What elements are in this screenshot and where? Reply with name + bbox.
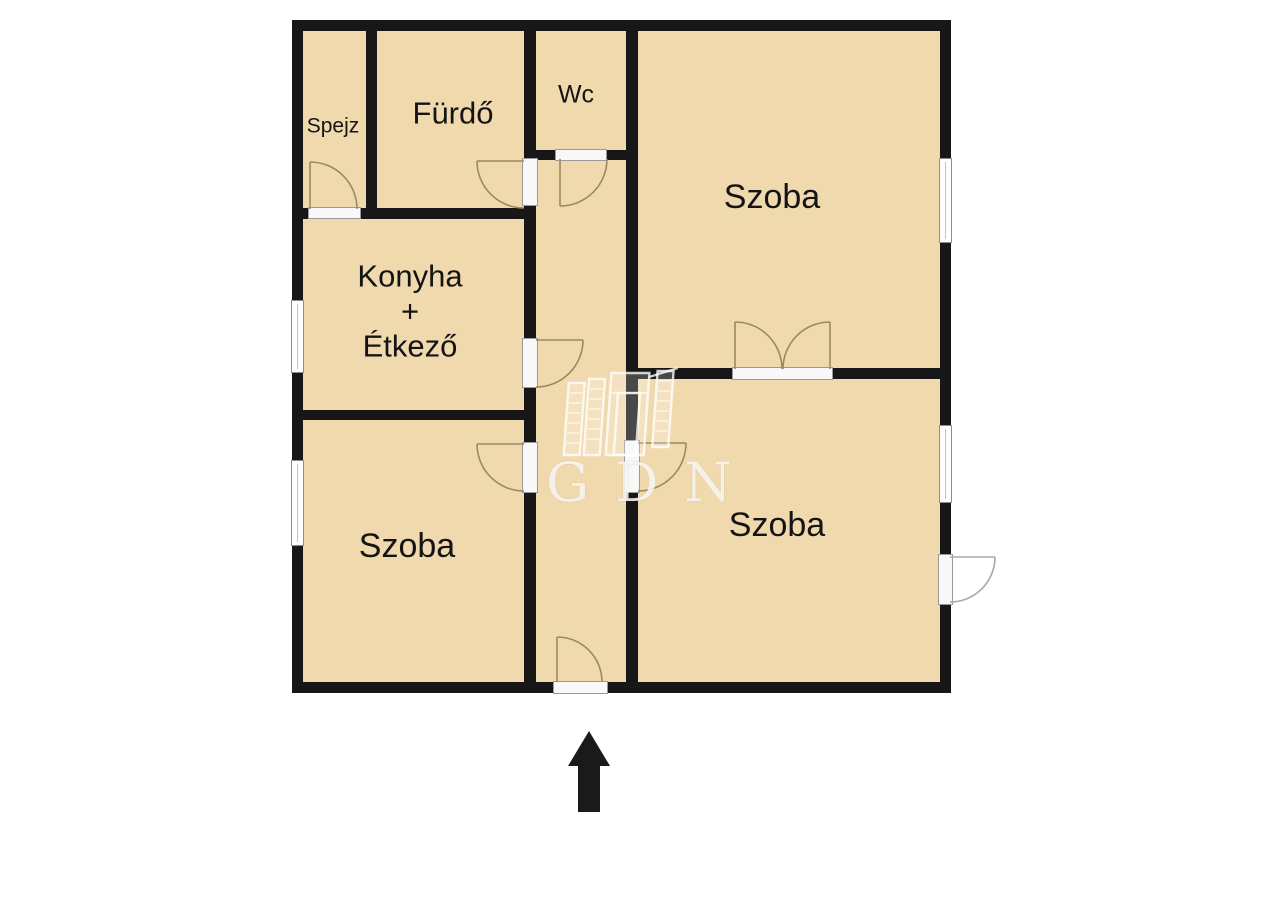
door-sill-entrance <box>553 681 608 694</box>
door-sill-szoba-bottom-left <box>522 442 538 493</box>
konyha-line2: + <box>357 294 462 329</box>
room-label-szoba-top-right: Szoba <box>724 180 820 214</box>
door-sill-exterior-right <box>938 554 953 605</box>
door-arc-exterior-right <box>950 557 995 602</box>
window-pane <box>945 429 946 499</box>
north-arrow-icon <box>568 731 610 812</box>
door-sill-szoba-bottom-right <box>624 440 640 493</box>
room-label-szoba-bottom-left: Szoba <box>359 529 455 563</box>
window-szoba-bottom-right <box>939 425 952 503</box>
wall-outer-bottom <box>292 682 951 693</box>
door-sill-konyha <box>522 338 538 388</box>
door-sill-double-door <box>732 367 833 380</box>
door-sill-furdo <box>522 158 538 206</box>
wall-spejz-furdo <box>366 31 377 219</box>
konyha-line1: Konyha <box>357 259 462 294</box>
window-szoba-bottom-left <box>291 460 304 546</box>
door-sill-wc <box>555 149 607 161</box>
floor-plan-page: Spejz Fürdő Wc Szoba Konyha + Étkező Szo… <box>0 0 1280 905</box>
room-label-konyha-etkezo: Konyha + Étkező <box>357 259 462 364</box>
wall-hall-right <box>626 31 638 682</box>
room-label-spejz: Spejz <box>307 116 360 137</box>
window-konyha <box>291 300 304 373</box>
room-label-wc: Wc <box>558 83 594 108</box>
window-pane <box>297 464 298 542</box>
konyha-line3: Étkező <box>357 329 462 364</box>
wall-konyha-szoba <box>303 410 535 420</box>
door-sill-spejz <box>308 207 361 219</box>
window-pane <box>297 304 298 369</box>
window-pane <box>945 162 946 239</box>
window-szoba-top-right <box>939 158 952 243</box>
room-label-szoba-bottom-right: Szoba <box>729 508 825 542</box>
room-label-furdo: Fürdő <box>413 98 494 129</box>
wall-outer-top <box>292 20 951 31</box>
